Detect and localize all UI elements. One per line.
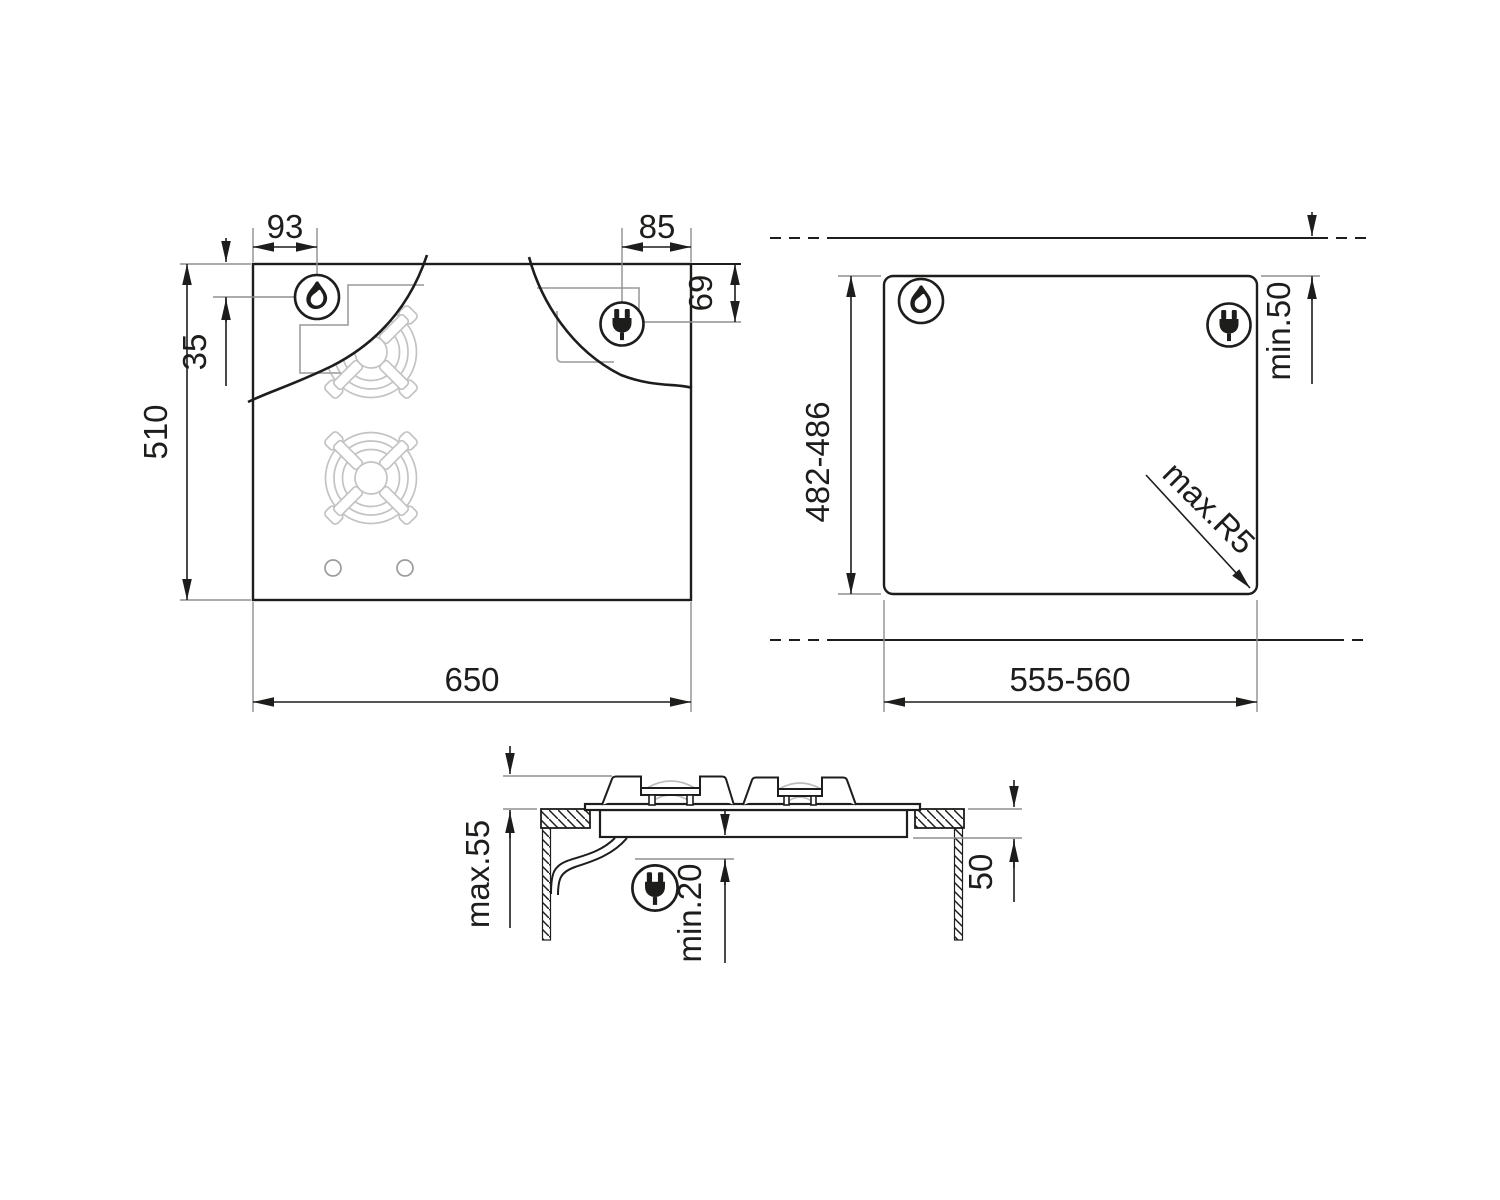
pan-support-left bbox=[602, 777, 734, 806]
cabinet-wall-left bbox=[543, 828, 551, 940]
hob-glass-profile bbox=[585, 804, 920, 810]
worktop-section-left bbox=[541, 809, 590, 828]
dim-label: 69 bbox=[682, 275, 719, 312]
dim-label: min.20 bbox=[671, 863, 708, 962]
dim-width: 650 bbox=[253, 661, 691, 702]
dim-cutout-width: 555-560 bbox=[884, 661, 1257, 702]
dim-cutout-depth: 482-486 bbox=[799, 276, 851, 594]
dim-label: 650 bbox=[444, 661, 499, 698]
dim-label: 85 bbox=[639, 208, 676, 245]
cutout-outline bbox=[884, 276, 1257, 594]
flame-icon bbox=[295, 275, 339, 319]
cutout-view: 482-486 min.50 555-560 max.R5 bbox=[770, 212, 1368, 712]
dim-label: 50 bbox=[962, 854, 999, 891]
dim-label: 510 bbox=[137, 404, 174, 459]
technical-drawing-canvas: 93 85 69 35 510 650 bbox=[0, 0, 1500, 1200]
plan-view: 93 85 69 35 510 650 bbox=[137, 208, 741, 712]
dim-gas-offset-x: 93 bbox=[253, 208, 317, 247]
pan-support-right bbox=[743, 778, 856, 806]
worktop-section-right bbox=[915, 809, 964, 828]
dim-label: 93 bbox=[267, 208, 304, 245]
control-knob-right bbox=[397, 560, 413, 576]
dim-label: 35 bbox=[176, 334, 213, 371]
dim-label: 555-560 bbox=[1009, 661, 1130, 698]
dim-gas-offset-y: 35 bbox=[176, 238, 226, 386]
control-knob-left bbox=[325, 560, 341, 576]
dim-label: max.55 bbox=[459, 820, 496, 928]
plug-icon bbox=[601, 303, 644, 346]
hob-body-profile bbox=[600, 810, 907, 837]
dim-label: min.50 bbox=[1260, 281, 1297, 380]
power-cable bbox=[551, 838, 627, 895]
dim-plug-offset-x: 85 bbox=[622, 208, 691, 247]
dim-label: 482-486 bbox=[799, 401, 836, 522]
dim-height-above-worktop: max.55 bbox=[459, 746, 510, 928]
dim-depth-below-worktop: 50 bbox=[962, 780, 1014, 902]
dim-depth: 510 bbox=[137, 264, 187, 600]
plug-icon bbox=[1208, 304, 1251, 347]
hob-installation-diagram: 93 85 69 35 510 650 bbox=[0, 0, 1500, 1200]
flame-icon bbox=[899, 279, 943, 323]
side-view: max.55 min.20 50 bbox=[459, 746, 1022, 963]
